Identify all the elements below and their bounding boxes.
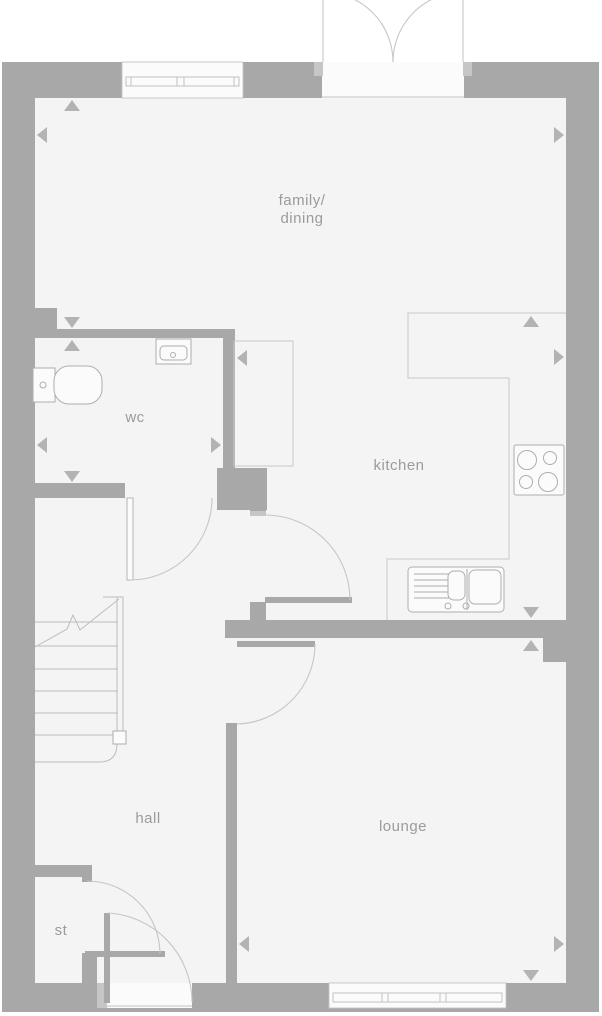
room-label-hall: hall <box>135 810 160 827</box>
exterior-wall-left <box>2 62 35 1012</box>
kitchen-door-jamb-tip <box>250 511 266 516</box>
french-door-swing-left <box>323 0 393 62</box>
toilet-bowl <box>54 366 102 404</box>
room-label-wc: wc <box>124 409 144 426</box>
window-opening <box>122 62 243 98</box>
french-door-jamb-left <box>314 62 323 76</box>
lounge-corner-pier <box>543 638 568 662</box>
exterior-wall-top <box>2 62 598 98</box>
floor-plan-page: family/ dining wc kitchen hall lounge st <box>0 0 602 1016</box>
wash-basin <box>156 339 191 364</box>
family-dining-window <box>122 62 243 98</box>
wc-wall-bottom <box>35 483 125 498</box>
kitchen-door-leaf <box>265 597 352 603</box>
hall-lounge-wall <box>226 723 237 983</box>
stair-newel-post <box>113 731 126 744</box>
store-door-bottom-jamb <box>82 953 97 983</box>
floor-area <box>35 98 566 983</box>
kitchen-door-top-jamb <box>250 497 266 511</box>
room-label-family-dining-line1: family/ <box>279 192 326 209</box>
lounge-window <box>329 983 506 1008</box>
french-doors <box>314 0 472 98</box>
room-label-kitchen: kitchen <box>373 457 424 474</box>
hob <box>514 445 564 495</box>
wc-door-leaf <box>127 498 133 580</box>
french-door-jamb-right <box>463 62 472 76</box>
sink-bowl-large <box>469 570 501 604</box>
exterior-wall-right <box>566 62 599 1012</box>
store-wall-top <box>33 865 82 877</box>
front-door-leaf <box>104 913 110 1003</box>
wc-wall-top <box>35 329 235 338</box>
room-label-family-dining-line2: dining <box>280 210 323 227</box>
french-door-opening <box>322 62 464 98</box>
kitchen-lounge-wall <box>225 620 568 638</box>
wc-wall-right <box>223 338 235 468</box>
french-door-swing-right <box>393 0 463 62</box>
sink-bowl-small <box>448 571 465 600</box>
floor-plan-svg: family/ dining wc kitchen hall lounge st <box>0 0 602 1016</box>
store-door-leaf <box>85 951 165 957</box>
window-opening <box>329 983 506 1008</box>
room-label-lounge: lounge <box>379 818 427 835</box>
exterior-wall-bottom <box>2 983 599 1012</box>
kitchen-door-bottom-stub <box>250 602 266 622</box>
toilet-cistern <box>33 368 55 402</box>
lounge-door-leaf <box>237 641 315 647</box>
front-door-opening <box>107 983 192 1008</box>
toilet <box>33 366 102 404</box>
store-door-top-jamb <box>82 865 92 882</box>
room-label-store: st <box>55 922 68 939</box>
kitchen-sink <box>408 567 504 612</box>
